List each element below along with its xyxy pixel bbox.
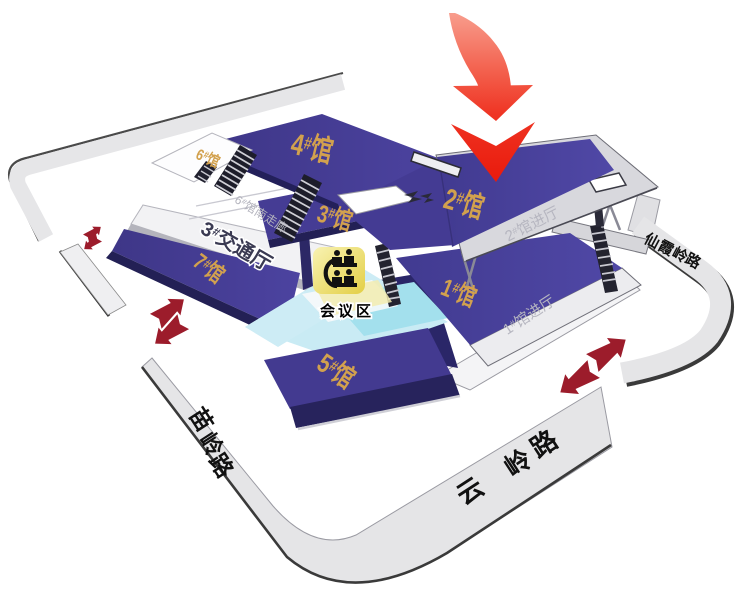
svg-text:会议区: 会议区	[320, 302, 374, 320]
